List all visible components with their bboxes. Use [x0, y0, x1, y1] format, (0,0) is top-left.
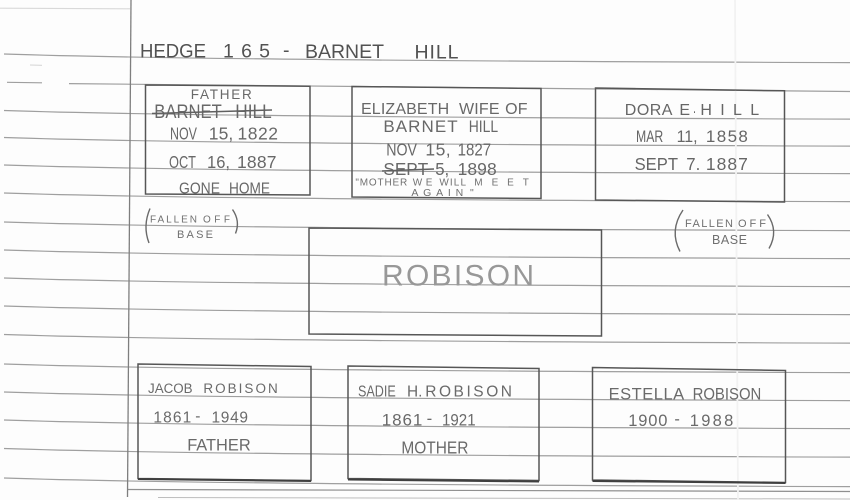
svg-text:OCT: OCT	[169, 152, 196, 172]
svg-text:MEET: MEET	[474, 178, 529, 189]
svg-text:HOME: HOME	[229, 181, 270, 198]
svg-text:HILL: HILL	[700, 102, 759, 119]
svg-text:15,: 15,	[425, 140, 450, 160]
svg-text:FATHER: FATHER	[187, 437, 251, 455]
svg-text:1921: 1921	[442, 411, 476, 430]
svg-text:1858: 1858	[706, 127, 748, 146]
svg-text:1827: 1827	[458, 140, 492, 160]
svg-text:BARNET: BARNET	[305, 41, 384, 63]
svg-text:SEPT: SEPT	[635, 154, 679, 174]
svg-text:HILL: HILL	[235, 101, 272, 123]
svg-text:-: -	[674, 411, 680, 429]
svg-text:NOV: NOV	[170, 124, 197, 144]
svg-text:1887: 1887	[237, 152, 277, 172]
svg-text:DORA: DORA	[625, 102, 673, 119]
svg-text:-: -	[427, 409, 433, 428]
svg-text:-: -	[195, 408, 200, 425]
svg-text:15,: 15,	[209, 124, 234, 144]
svg-text:FALLEN: FALLEN	[685, 218, 733, 230]
svg-text:165: 165	[223, 41, 270, 63]
svg-text:1900: 1900	[628, 412, 667, 430]
svg-text:11,: 11,	[677, 127, 698, 146]
svg-text:ESTELLA: ESTELLA	[609, 385, 685, 403]
svg-text:ELIZABETH: ELIZABETH	[361, 101, 449, 118]
svg-text:GONE: GONE	[179, 181, 220, 198]
svg-text:MOTHER: MOTHER	[401, 438, 468, 458]
svg-text:FALLEN: FALLEN	[150, 215, 197, 226]
svg-text:BASE: BASE	[177, 229, 213, 241]
svg-text:H.: H.	[407, 384, 422, 401]
svg-text:ROBISON: ROBISON	[382, 260, 534, 293]
svg-text:JACOB: JACOB	[148, 381, 193, 396]
svg-text:NOV: NOV	[386, 140, 417, 160]
svg-text:HILL: HILL	[415, 42, 459, 64]
svg-text:": "	[470, 187, 474, 199]
svg-text:1887: 1887	[706, 154, 748, 174]
svg-text:1898: 1898	[458, 159, 497, 179]
svg-text:OFF: OFF	[738, 218, 766, 230]
svg-text:OF: OF	[505, 101, 528, 118]
svg-text:5,: 5,	[435, 159, 449, 179]
svg-text:1861: 1861	[153, 409, 191, 426]
svg-text:E: E	[679, 102, 690, 119]
svg-text:FATHER: FATHER	[191, 87, 252, 102]
svg-text:BASE: BASE	[712, 233, 747, 247]
svg-text:OFF: OFF	[203, 215, 230, 226]
svg-text:MAR: MAR	[636, 127, 663, 146]
svg-text:ROBISON: ROBISON	[203, 381, 277, 396]
svg-text:1861: 1861	[382, 411, 423, 430]
svg-text:ROBISON: ROBISON	[425, 384, 512, 401]
svg-text:-: -	[283, 40, 290, 62]
svg-text:1949: 1949	[212, 409, 249, 426]
svg-text:16,: 16,	[207, 152, 230, 172]
svg-text:SADIE: SADIE	[358, 384, 396, 401]
svg-text:ROBISON: ROBISON	[693, 385, 762, 403]
svg-text:.: .	[693, 100, 696, 117]
svg-text:1988: 1988	[690, 412, 734, 430]
svg-text:HILL: HILL	[469, 117, 498, 136]
svg-text:"MOTHER: "MOTHER	[355, 178, 407, 189]
svg-text:7.: 7.	[686, 154, 700, 174]
svg-text:HEDGE: HEDGE	[140, 41, 206, 63]
svg-text:WIFE: WIFE	[459, 101, 500, 118]
svg-text:1822: 1822	[238, 124, 279, 144]
svg-text:BARNET: BARNET	[383, 117, 457, 136]
